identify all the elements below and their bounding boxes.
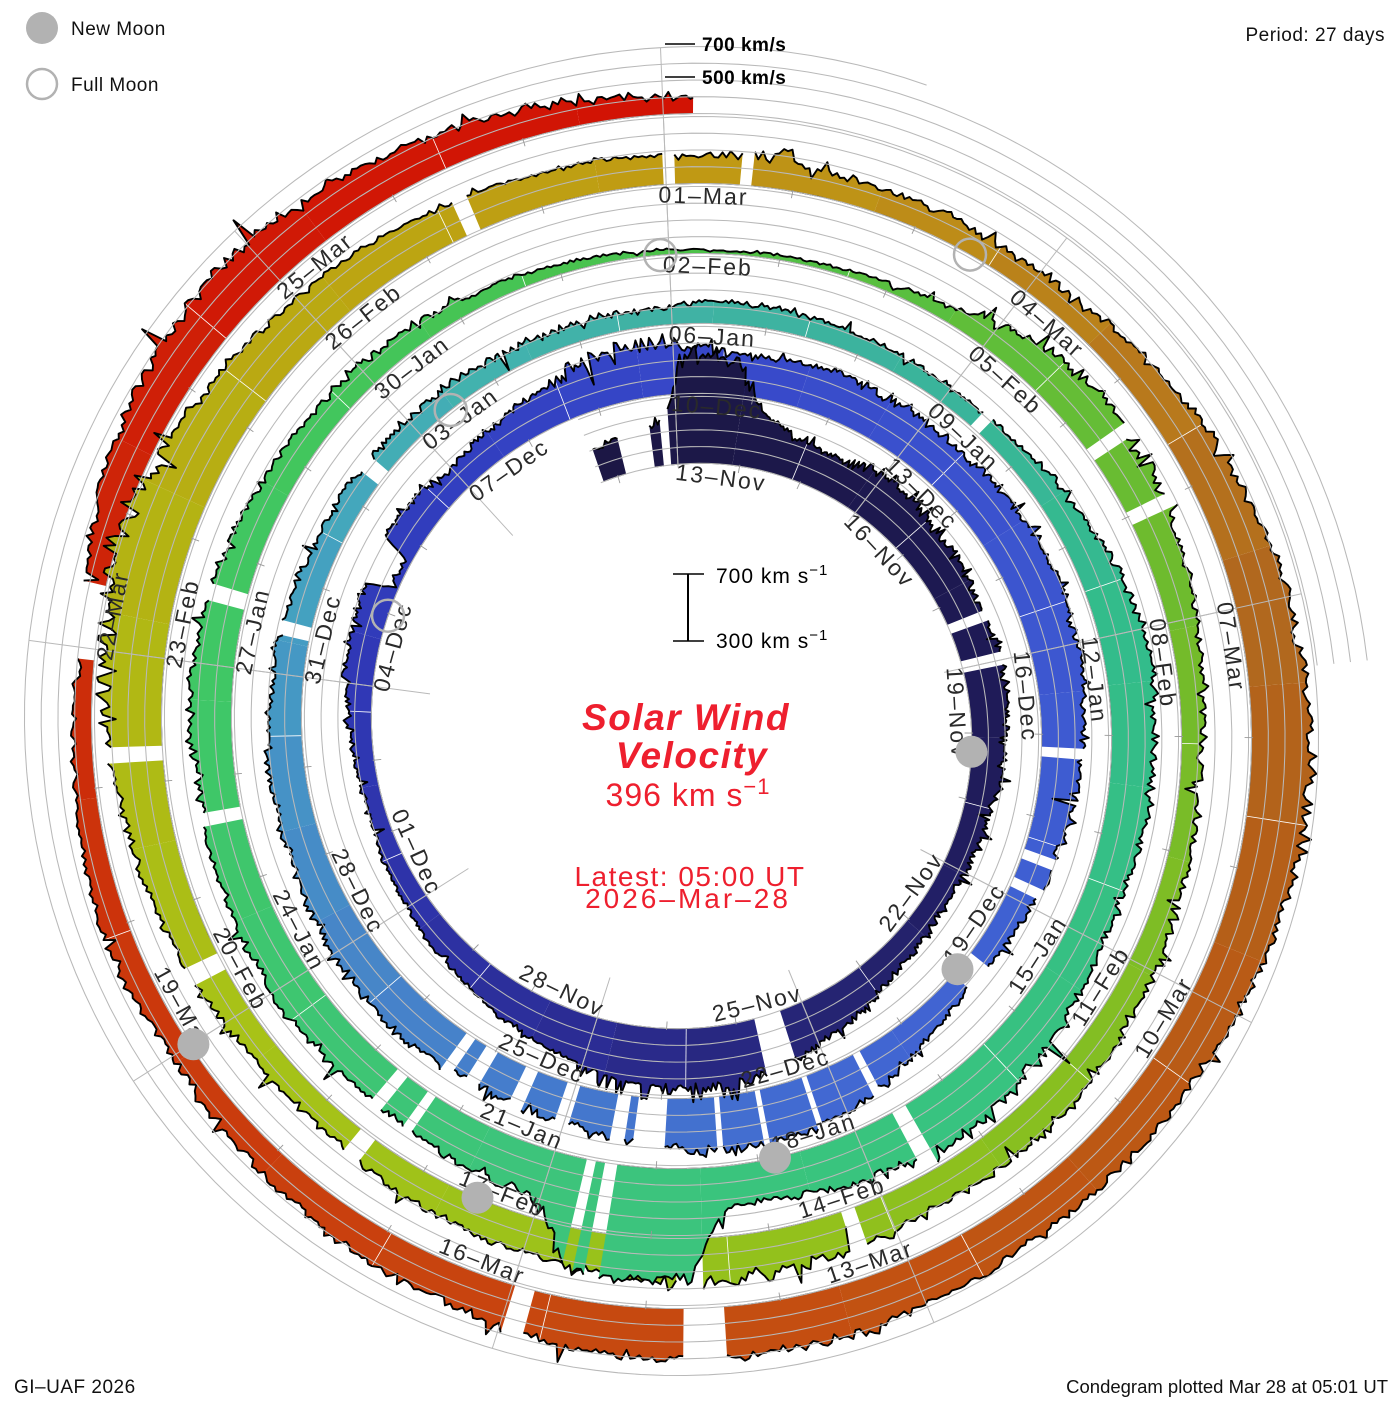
svg-text:Condegram plotted Mar 28 at 05: Condegram plotted Mar 28 at 05:01 UT (1066, 1376, 1388, 1397)
svg-text:500 km/s: 500 km/s (702, 68, 786, 89)
svg-text:Solar Wind: Solar Wind (582, 697, 790, 738)
svg-text:GI–UAF 2026: GI–UAF 2026 (14, 1377, 136, 1398)
svg-text:Full Moon: Full Moon (71, 75, 159, 96)
svg-text:700 km/s: 700 km/s (702, 35, 786, 56)
svg-text:New Moon: New Moon (71, 19, 166, 40)
svg-text:06–Jan: 06–Jan (668, 321, 757, 352)
svg-text:Period: 27 days: Period: 27 days (1245, 25, 1385, 46)
svg-text:2026–Mar–28: 2026–Mar–28 (585, 883, 791, 914)
svg-text:Velocity: Velocity (616, 735, 769, 776)
svg-text:01–Mar: 01–Mar (658, 181, 749, 210)
